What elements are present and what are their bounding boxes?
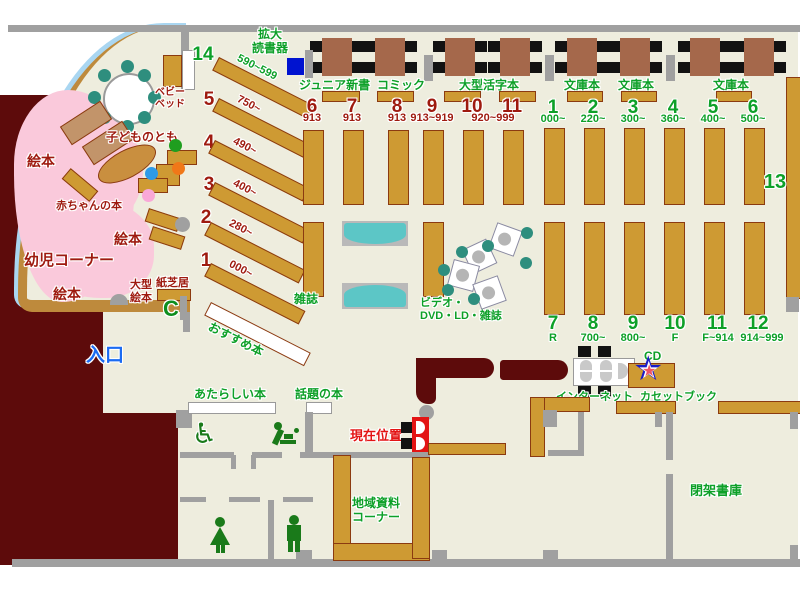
magnifier-label-l2: 読書器: [252, 41, 288, 55]
stack-number: 7: [533, 314, 573, 333]
wall: [268, 500, 274, 562]
reading-table: [555, 38, 609, 76]
reading-table: [433, 38, 487, 76]
top-wall: [8, 25, 800, 32]
stack-number-13: 13: [760, 172, 790, 192]
stack-a6: [744, 128, 765, 205]
ogata-ehon-label-l2: 絵本: [130, 292, 152, 304]
wall: [231, 455, 236, 469]
marker-chair: [401, 422, 412, 433]
stack-6: [303, 130, 324, 205]
sofa: [342, 283, 408, 309]
wall-pillar: [432, 550, 447, 564]
wall: [790, 412, 798, 429]
stack-a4: [664, 128, 685, 205]
reading-table: [678, 38, 732, 76]
magnifier-device: [287, 58, 304, 75]
pillar: [666, 55, 675, 81]
cushion-orange: [172, 162, 185, 175]
reading-table: [363, 38, 417, 76]
chair-dot: [521, 227, 533, 239]
magazine-label: 雑誌: [294, 293, 318, 307]
new-books-label: あたらしい本: [194, 388, 266, 402]
wall: [300, 452, 430, 458]
stack-8: [388, 130, 409, 205]
local-docs-label-l2: コーナー: [352, 510, 400, 524]
stack-range: 914~999: [725, 333, 799, 344]
stack-10: [463, 130, 484, 205]
stack-b12: [744, 222, 765, 315]
stack-b11: [704, 222, 725, 315]
wall-pillar: [543, 550, 558, 564]
ogata-ehon-label-l1: 大型: [130, 279, 152, 291]
shelf: [718, 401, 800, 414]
wall-stub: [180, 296, 187, 320]
reading-table: [488, 38, 542, 76]
stack-11: [503, 130, 524, 205]
stack-number: 10: [655, 314, 695, 333]
stack-a5: [704, 128, 725, 205]
wall-pillar: [543, 410, 557, 427]
pillar: [175, 217, 190, 232]
shelf: [428, 443, 506, 455]
chair-dot: [98, 69, 111, 82]
ehon-label: 絵本: [27, 153, 55, 169]
stack-a3: [624, 128, 645, 205]
service-counter: [500, 360, 568, 380]
magnifier-label-l1: 拡大: [258, 27, 282, 41]
video-label-l2: DVD・LD・雑誌: [420, 310, 502, 322]
reading-table: [310, 38, 364, 76]
baby-bed-label-l2: ベッド: [155, 99, 185, 110]
pillar: [305, 50, 313, 78]
wall: [578, 412, 584, 456]
library-floor-map: 入口 子どものとも ベビー ベッド 絵本 絵本 絵本 赤ちゃんの本 幼児コーナー…: [0, 0, 800, 600]
wheelchair-icon: ♿: [192, 420, 217, 448]
stack-number: 12: [738, 314, 778, 333]
shelf: [530, 397, 545, 457]
wall: [252, 452, 282, 458]
service-counter: [416, 358, 494, 378]
wall: [655, 412, 662, 427]
man-icon: [282, 515, 306, 553]
stack-range-shared: 920~999: [460, 113, 526, 124]
stack-range: 913~919: [397, 113, 467, 124]
seat-mark: [580, 360, 592, 370]
chair-dot: [456, 246, 468, 258]
akachan-books-label: 赤ちゃんの本: [56, 200, 122, 213]
shelf-number: 14: [186, 45, 220, 64]
woman-icon: [208, 517, 232, 553]
chair-dot: [121, 60, 134, 73]
baby-bed-label-l1: ベビー: [155, 87, 185, 98]
cushion-blue: [145, 167, 158, 180]
wall: [180, 497, 206, 502]
chair-dot: [138, 69, 151, 82]
chair-dot: [438, 264, 450, 276]
sofa: [342, 221, 408, 246]
cushion-green: [169, 139, 182, 152]
shelf-number: 2: [189, 208, 223, 227]
local-docs-label-l1: 地域資料: [352, 496, 400, 510]
local-docs-shelf: [333, 455, 351, 557]
wall: [251, 455, 256, 469]
seat-mark: [600, 360, 612, 370]
topic-books-label: 話題の本: [295, 388, 343, 402]
marker-chair: [401, 438, 412, 449]
wall: [283, 497, 313, 502]
stack-7: [343, 130, 364, 205]
phone-icon: C: [163, 296, 179, 322]
chair-dot: [468, 293, 480, 305]
wall: [790, 545, 798, 565]
current-position-label: 現在位置: [350, 429, 402, 444]
wall: [666, 412, 673, 460]
pillar: [786, 297, 799, 312]
stack-number: 9: [613, 314, 653, 333]
reading-table: [608, 38, 662, 76]
stack-9: [423, 130, 444, 205]
reading-table: [732, 38, 786, 76]
chair-dot: [442, 284, 454, 296]
ehon-label: 絵本: [114, 231, 142, 247]
chair: [578, 346, 591, 357]
stack-b7: [544, 222, 565, 315]
stack-a2: [584, 128, 605, 205]
entrance-label: 入口: [86, 345, 124, 367]
chair-dot: [138, 111, 151, 124]
ehon-label: 絵本: [53, 286, 81, 302]
magazine-shelf: [303, 222, 324, 297]
baby-change-icon: [272, 422, 302, 452]
stack-a1: [544, 128, 565, 205]
cushion-pink: [142, 189, 155, 202]
stack-range: 500~: [718, 114, 788, 125]
cd-star-icon: ★: [642, 364, 656, 380]
kodomo-no-tomo-label: 子どものとも: [106, 131, 178, 145]
wall: [180, 452, 234, 458]
video-shelf: [423, 222, 444, 297]
video-label-l1: ビデオ・: [420, 297, 464, 309]
pillar: [545, 55, 554, 81]
stack-b8: [584, 222, 605, 315]
kamishibai-label: 紙芝居: [156, 277, 189, 290]
pillar: [424, 55, 433, 81]
stack-number: 8: [573, 314, 613, 333]
new-books-shelf: [188, 402, 276, 414]
chair-dot: [520, 257, 532, 269]
stack-number: 11: [697, 314, 737, 333]
chair: [598, 346, 611, 357]
closed-stacks-label: 閉架書庫: [690, 484, 742, 499]
wall: [229, 497, 260, 502]
pillar: [110, 294, 128, 305]
infant-corner-label: 幼児コーナー: [24, 252, 114, 269]
baby-bed-shelf: [163, 55, 182, 87]
stack-b10: [664, 222, 685, 315]
local-docs-shelf: [412, 457, 430, 559]
wall: [666, 474, 673, 566]
stack-b9: [624, 222, 645, 315]
chair-dot: [482, 240, 494, 252]
